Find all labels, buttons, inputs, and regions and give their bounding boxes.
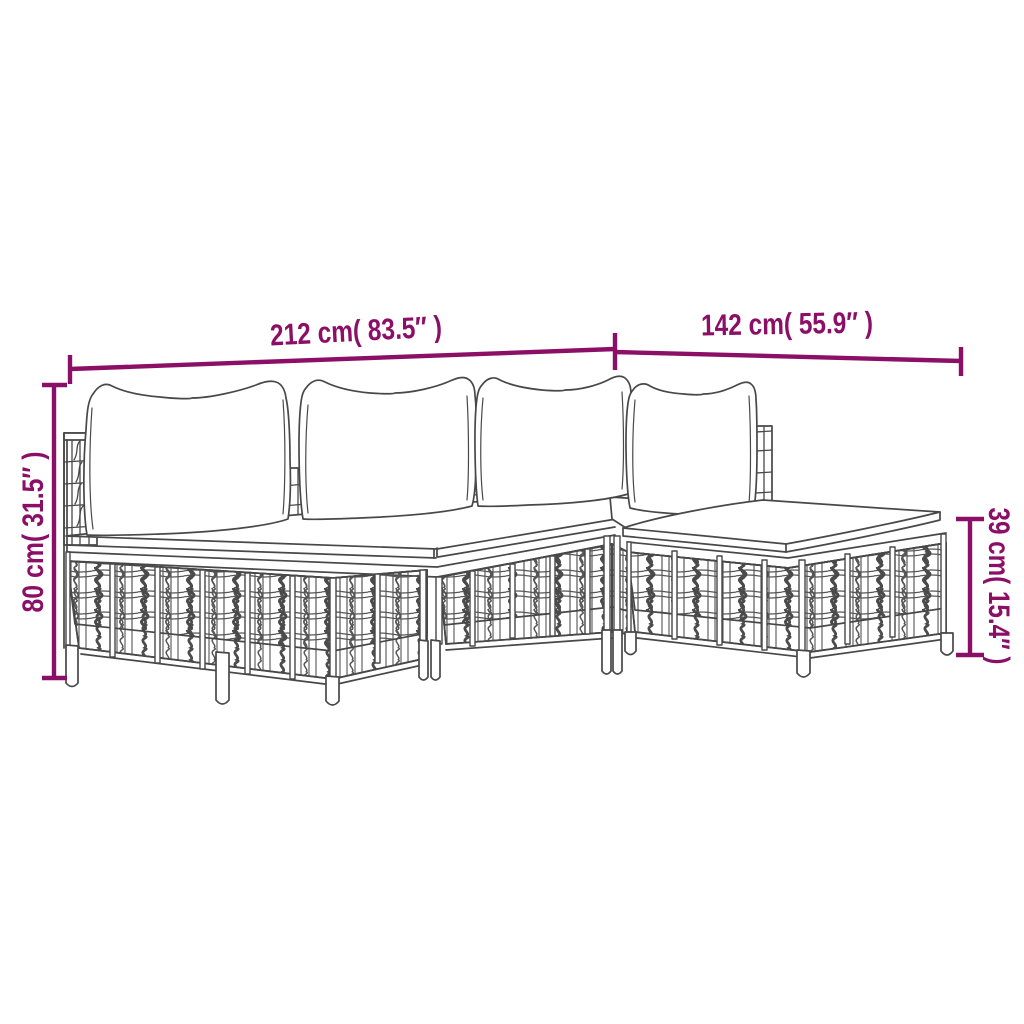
svg-text:142 cm( 55.9″ ): 142 cm( 55.9″ ): [701, 307, 874, 343]
svg-text:39 cm( 15.4″ ): 39 cm( 15.4″ ): [982, 508, 1015, 665]
svg-text:212 cm( 83.5″ ): 212 cm( 83.5″ ): [269, 311, 442, 353]
svg-text:80 cm( 31.5″ ): 80 cm( 31.5″ ): [17, 452, 50, 613]
